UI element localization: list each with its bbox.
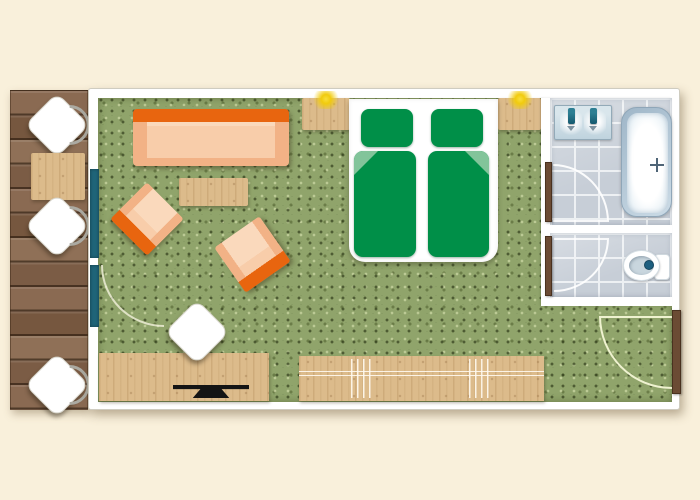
sofa [133, 109, 289, 166]
duvet-left [354, 151, 416, 257]
faucet-arrow-right [589, 126, 597, 131]
duvet-right [428, 151, 489, 257]
washbasin-vanity [554, 105, 612, 140]
bathtub [621, 107, 672, 217]
bathroom-door [545, 162, 552, 222]
faucet-left [568, 108, 575, 124]
desk [99, 353, 269, 401]
sideboard-slats-left [351, 359, 374, 398]
balcony-chair-3 [24, 352, 89, 417]
sideboard-slats-right [469, 359, 492, 398]
balcony-window-lower [90, 265, 99, 327]
wc-door [545, 236, 552, 296]
faucet-arrow-left [567, 126, 575, 131]
balcony-table [31, 153, 85, 200]
toilet-bowl [623, 250, 660, 281]
sideboard [299, 356, 544, 401]
faucet-right [590, 108, 597, 124]
duvet-fold [465, 151, 489, 175]
balcony-chair-2 [24, 193, 89, 258]
floor-plan-canvas [0, 0, 700, 500]
room-walls [88, 88, 680, 410]
coffee-table [179, 178, 248, 206]
bathtub-faucet-icon [650, 158, 664, 172]
toilet-flush-button [644, 260, 654, 270]
sideboard-trim [299, 371, 544, 376]
entrance-door [672, 310, 681, 394]
twin-bed-platform [349, 99, 498, 262]
pillow-right [431, 109, 483, 147]
wall-lamp-left [313, 91, 339, 109]
duvet-fold [354, 151, 378, 175]
pillow-left [361, 109, 413, 147]
balcony-window-upper [90, 169, 99, 258]
balcony-chair-1 [24, 92, 89, 157]
balcony-deck [10, 90, 88, 410]
bathroom [541, 98, 672, 306]
wall-lamp-right [507, 91, 533, 109]
